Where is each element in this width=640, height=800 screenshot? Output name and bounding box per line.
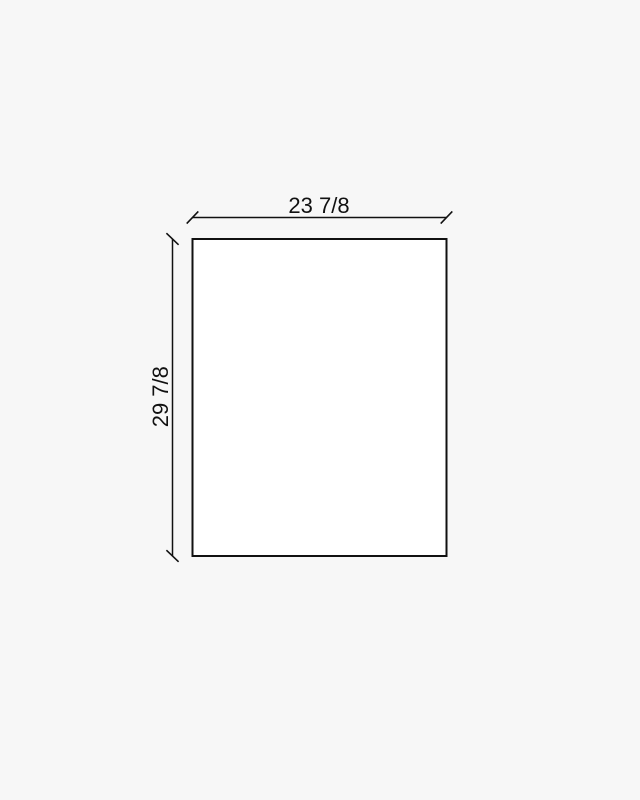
- svg-text:23 7/8: 23 7/8: [288, 193, 349, 218]
- svg-text:29 7/8: 29 7/8: [148, 366, 173, 427]
